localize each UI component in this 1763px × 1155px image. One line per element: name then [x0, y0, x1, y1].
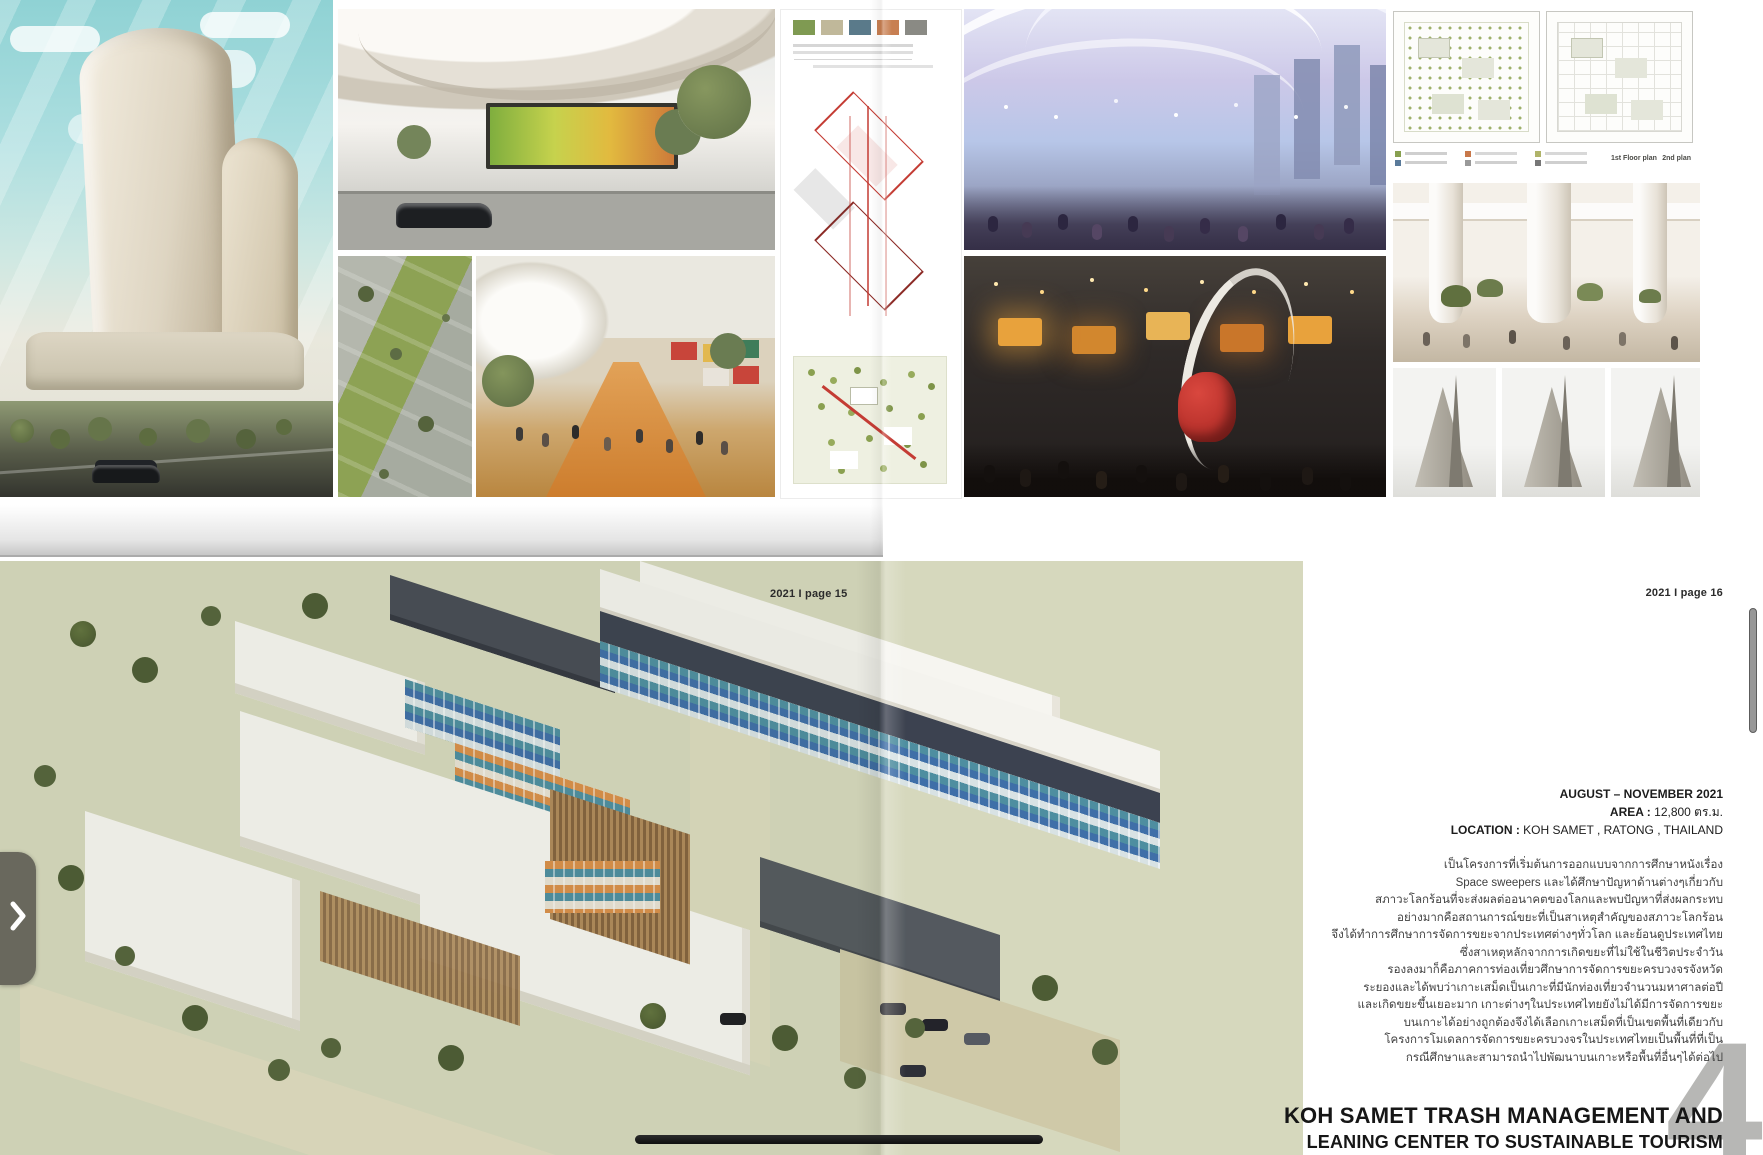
- render-promenade-image: [476, 256, 775, 497]
- column-shape: [1633, 183, 1667, 323]
- model-photo-2: [1502, 368, 1605, 497]
- floor-plan-legend: 1st Floor plan 2nd plan: [1393, 147, 1691, 175]
- chevron-right-icon: [10, 901, 26, 936]
- description-line: บนเกาะได้อย่างถูกต้องจึงได้เลือกเกาะเสม็…: [1331, 1015, 1723, 1033]
- spread-pages-15-16[interactable]: 2021 I page 15 2021 I page 16 4 AUGUST –…: [0, 557, 1763, 1155]
- people-silhouettes: [1423, 332, 1430, 346]
- tree-dots: [808, 369, 815, 376]
- long-factory-building: [600, 569, 1160, 869]
- column-shape: [1527, 183, 1571, 323]
- model-tower-shape: [1415, 387, 1473, 487]
- column-shape: [1429, 183, 1463, 323]
- crowd-band: [964, 443, 1386, 497]
- area-label: AREA :: [1610, 805, 1651, 819]
- description-line: กรณีศึกษาและสามารถนำไปพัฒนาบนเกาะหรือพื้…: [1331, 1050, 1723, 1068]
- description-line: รองลงมาก็คือภาคการท่องเที่ยวศึกษาการจัดก…: [1331, 962, 1723, 980]
- street-ground: [0, 401, 333, 497]
- model-photo-3: [1611, 368, 1700, 497]
- parked-cars: [880, 1003, 906, 1015]
- crowd-band: [964, 186, 1386, 250]
- model-photo-1: [1393, 368, 1496, 497]
- trees-graphic: [677, 65, 751, 139]
- page-curl-shadow: [0, 505, 883, 555]
- page-15-label: 2021 I page 15: [770, 588, 847, 600]
- floor-plan-first: [1393, 11, 1540, 143]
- mosaic-facade: [545, 861, 660, 913]
- hanging-lights: [994, 282, 998, 286]
- panel-axonometric-diagrams: [780, 9, 962, 499]
- description-line: อย่างมากคือสถานการณ์ขยะที่เป็นสาเหตุสำคั…: [1331, 910, 1723, 928]
- legend-text-bars: [1405, 152, 1447, 155]
- legend-color-keys: [1395, 151, 1401, 157]
- description-line: เป็นโครงการที่เริ่มต้นการออกแบบจากการศึก…: [1331, 857, 1723, 875]
- render-interior-atrium-image: [1393, 183, 1700, 362]
- project-info-block: AUGUST – NOVEMBER 2021 AREA : 12,800 ตร.…: [1451, 785, 1723, 839]
- trees-graphic: [358, 286, 374, 302]
- people-silhouettes: [516, 427, 523, 441]
- render-night-market-image: [964, 256, 1386, 497]
- photo-chips: [793, 20, 815, 35]
- podium-shape: [26, 332, 304, 390]
- trees-graphic: [482, 355, 534, 407]
- description-line: Space sweepers และได้ศึกษาปัญหาด้านต่างๆ…: [1331, 875, 1723, 893]
- building-footprints: [850, 387, 878, 405]
- bushes-graphic: [10, 419, 34, 443]
- site-plan-mini: [793, 356, 947, 484]
- billboard-screen: [486, 103, 678, 169]
- area-value: 12,800 ตร.ม.: [1654, 805, 1723, 819]
- next-page-button[interactable]: [0, 852, 36, 985]
- red-mascot-figure: [1178, 372, 1236, 442]
- page-16-label: 2021 I page 16: [1646, 587, 1723, 599]
- render-street-building-image: [338, 9, 775, 250]
- description-line: สภาวะโลกร้อนที่จะส่งผลต่ออนาคตของโลกและพ…: [1331, 892, 1723, 910]
- render-green-walkway-image: [338, 256, 472, 497]
- stall-sign-glow: [998, 318, 1042, 346]
- iso-diagram-lower: [814, 201, 924, 311]
- string-lights: [1004, 105, 1008, 109]
- palm-trees: [640, 1003, 666, 1029]
- description-line: ซึ่งสาเหตุหลักจากการเกิดขยะที่ไม่ใช้ในชี…: [1331, 945, 1723, 963]
- food-stall-signs: [671, 342, 697, 360]
- model-tower-shape: [1524, 387, 1582, 487]
- description-line: และเกิดขยะขึ้นเยอะมาก เกาะต่างๆในประเทศไ…: [1331, 997, 1723, 1015]
- caption-text-bars: [793, 44, 913, 47]
- location-label: LOCATION :: [1451, 823, 1520, 837]
- plan-blocks: [1571, 38, 1603, 58]
- render-canopy-plaza-image: [964, 9, 1386, 250]
- second-floor-plan-label: 2nd plan: [1662, 155, 1691, 162]
- project-location: LOCATION : KOH SAMET , RATONG , THAILAND: [1451, 821, 1723, 839]
- car-shape: [396, 203, 492, 228]
- palm-trees: [70, 621, 96, 647]
- description-line: โครงการโมเดลการจัดการขยะครบวงจรในประเทศไ…: [1331, 1032, 1723, 1050]
- description-line: จึงได้ทำการศึกษาการจัดการขยะจากประเทศต่า…: [1331, 927, 1723, 945]
- model-tower-shape: [1633, 387, 1691, 487]
- location-value: KOH SAMET , RATONG , THAILAND: [1523, 823, 1723, 837]
- project-description: เป็นโครงการที่เริ่มต้นการออกแบบจากการศึก…: [1331, 857, 1723, 1067]
- clouds-graphic: [10, 26, 100, 52]
- orange-pathway: [546, 362, 706, 497]
- plants-graphic: [1477, 279, 1503, 297]
- project-title-line1: KOH SAMET TRASH MANAGEMENT AND: [1284, 1103, 1723, 1129]
- floor-plan-second: [1546, 11, 1693, 143]
- render-futuristic-tower-image: [0, 0, 333, 497]
- project-title-line2: LEANING CENTER TO SUSTAINABLE TOURISM: [1284, 1132, 1723, 1153]
- spread-previous-pages[interactable]: 1st Floor plan 2nd plan: [0, 0, 1763, 557]
- sports-car-shape: [92, 465, 160, 483]
- people-silhouettes: [984, 465, 995, 483]
- project-title: KOH SAMET TRASH MANAGEMENT AND LEANING C…: [1284, 1103, 1723, 1153]
- reading-progress-bar[interactable]: [635, 1135, 1043, 1144]
- dark-roof-building: [390, 575, 615, 693]
- koh-samet-isometric-render: [0, 561, 1303, 1155]
- people-silhouettes: [988, 216, 998, 232]
- flipbook-viewer: 1st Floor plan 2nd plan: [0, 0, 1763, 1155]
- description-line: ระยองและได้พบว่าเกาะเสม็ดเป็นเกาะที่มีนั…: [1331, 980, 1723, 998]
- project-date: AUGUST – NOVEMBER 2021: [1451, 785, 1723, 803]
- project-area: AREA : 12,800 ตร.ม.: [1451, 803, 1723, 821]
- vertical-scrollbar-thumb[interactable]: [1749, 608, 1757, 733]
- background-towers: [1334, 45, 1360, 165]
- plan-blocks: [1418, 38, 1450, 58]
- red-connector-lines: [867, 106, 869, 306]
- first-floor-plan-label: 1st Floor plan: [1611, 155, 1657, 162]
